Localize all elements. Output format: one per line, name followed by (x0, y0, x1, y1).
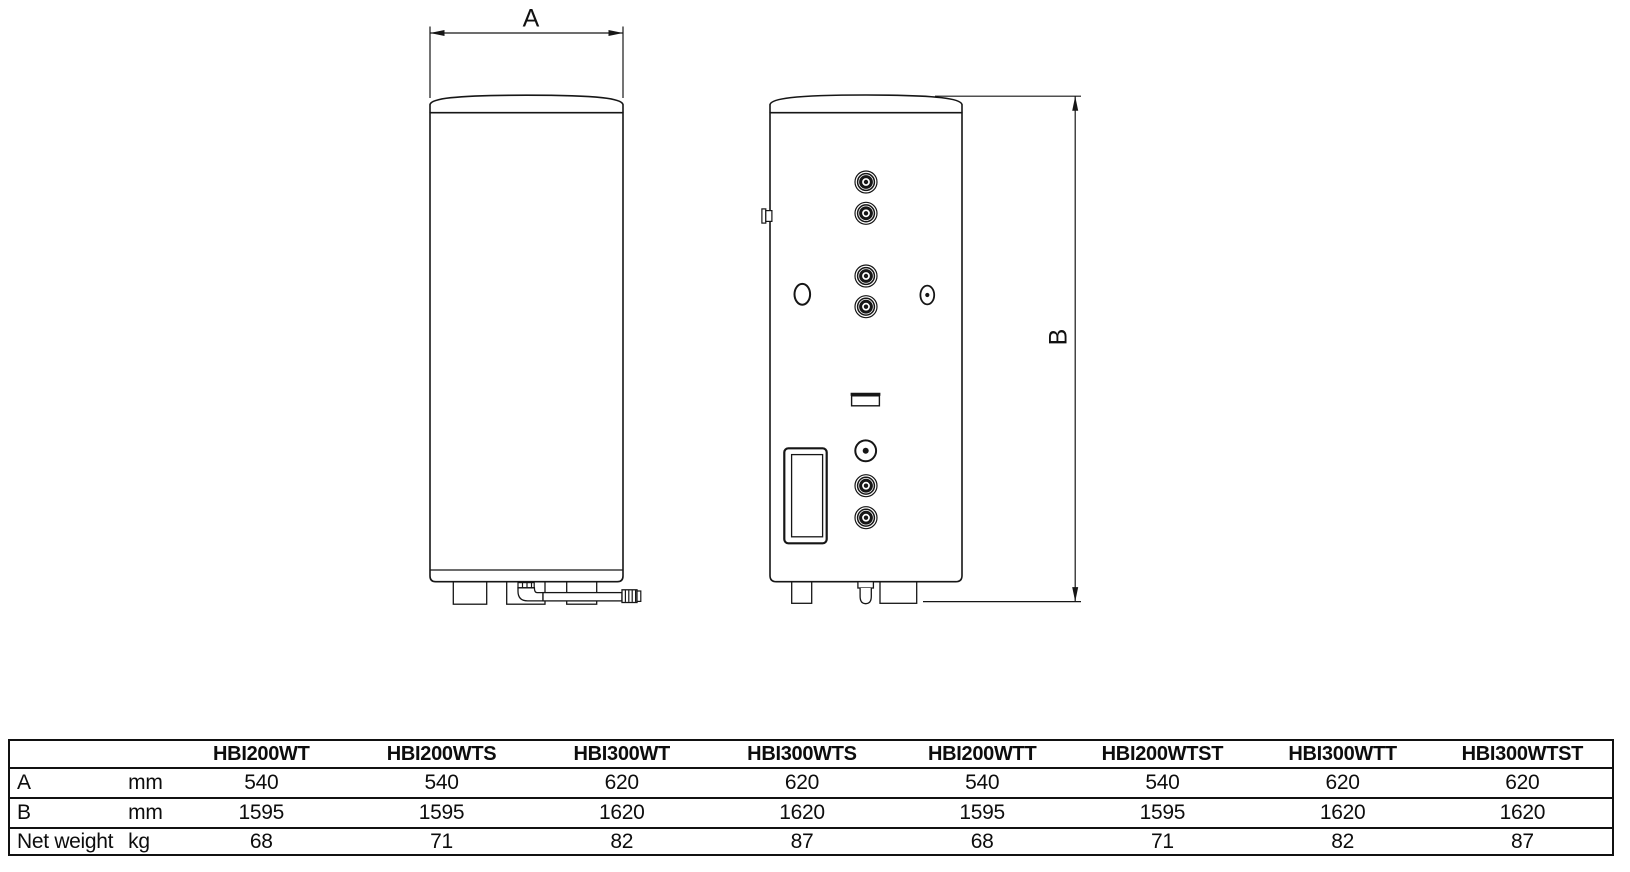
spec-cell: 1620 (532, 798, 712, 828)
sensor-pocket-right (920, 286, 934, 305)
access-panel-outer (784, 448, 826, 543)
rear-foot (880, 582, 917, 604)
front-tank-base-plate (430, 570, 623, 582)
spec-cell: 540 (171, 768, 351, 798)
arrowhead-bottom (1072, 587, 1078, 602)
pipe-elbow (518, 588, 543, 601)
front-tank-top-dome (430, 95, 623, 113)
spec-cell: 68 (171, 828, 351, 855)
pipe-threaded-end (622, 590, 637, 603)
pipe-end-cap (637, 591, 641, 601)
spec-cell: 71 (351, 828, 531, 855)
spec-cell: 1620 (1433, 798, 1613, 828)
pipe-connection-port (855, 475, 877, 497)
table-row: Bmm15951595162016201595159516201620 (9, 798, 1613, 828)
drain-valve-collar (858, 582, 874, 588)
cable-entry-box (851, 394, 881, 406)
row-unit: mm (124, 798, 171, 828)
table-row: Net weightkg6871828768718287 (9, 828, 1613, 855)
wall-bracket-tab (766, 211, 772, 222)
table-row: Amm540540620620540540620620 (9, 768, 1613, 798)
thermostat-port (855, 440, 876, 461)
rear-foot (792, 582, 812, 604)
drain-valve-body (860, 588, 871, 604)
column-header: HBI200WT (171, 740, 351, 768)
spec-table: HBI200WTHBI200WTSHBI300WTHBI300WTSHBI200… (8, 739, 1614, 856)
column-header: HBI300WTST (1433, 740, 1613, 768)
row-label: Net weight (9, 828, 124, 855)
spec-cell: 540 (892, 768, 1072, 798)
spec-cell: 87 (1433, 828, 1613, 855)
row-unit: kg (124, 828, 171, 855)
column-header: HBI200WTST (1072, 740, 1252, 768)
pipe-connection-port (855, 296, 877, 318)
spec-cell: 1620 (1253, 798, 1433, 828)
pipe-connection-port (855, 265, 877, 287)
pipe-connection-port (855, 202, 877, 224)
spec-cell: 540 (351, 768, 531, 798)
sensor-pocket-left (795, 284, 811, 305)
unit-header-cell (124, 740, 171, 768)
technical-drawing: A (0, 0, 1630, 710)
drain-pipe-assembly (518, 583, 641, 603)
spec-cell: 82 (532, 828, 712, 855)
sensor-pocket-right-dot (925, 293, 929, 297)
row-label: B (9, 798, 124, 828)
pipe-horizontal (543, 593, 622, 601)
pipe-connection-port (855, 507, 877, 529)
column-header: HBI200WTS (351, 740, 531, 768)
spec-cell: 1595 (171, 798, 351, 828)
pipe-connection-port (855, 171, 877, 193)
spec-cell: 620 (712, 768, 892, 798)
spec-cell: 1595 (1072, 798, 1252, 828)
column-header: HBI300WTS (712, 740, 892, 768)
spec-cell: 1620 (712, 798, 892, 828)
cable-entry-body (852, 396, 880, 406)
dim-b-label: B (1045, 329, 1073, 346)
arrowhead-left (430, 30, 445, 36)
front-view: A (430, 5, 641, 605)
spec-cell: 87 (712, 828, 892, 855)
front-foot (453, 582, 486, 605)
thermostat-port-dot (863, 448, 869, 454)
spec-cell: 620 (532, 768, 712, 798)
drain-valve (858, 582, 874, 604)
access-panel (784, 448, 826, 543)
corner-cell (9, 740, 124, 768)
spec-cell: 71 (1072, 828, 1252, 855)
spec-cell: 1595 (351, 798, 531, 828)
table-header-row: HBI200WTHBI200WTSHBI300WTHBI300WTSHBI200… (9, 740, 1613, 768)
spec-cell: 1595 (892, 798, 1072, 828)
dimension-b: B (923, 96, 1081, 601)
access-panel-inner (792, 455, 823, 537)
dim-a-label: A (523, 5, 540, 33)
column-header: HBI200WTT (892, 740, 1072, 768)
spec-cell: 68 (892, 828, 1072, 855)
spec-cell: 620 (1253, 768, 1433, 798)
spec-sheet-page: A (0, 0, 1630, 872)
arrowhead-top (1072, 96, 1078, 111)
dimension-a: A (430, 5, 623, 99)
spec-cell: 82 (1253, 828, 1433, 855)
row-unit: mm (124, 768, 171, 798)
rear-tank-top-dome (770, 95, 962, 113)
spec-cell: 620 (1433, 768, 1613, 798)
spec-cell: 540 (1072, 768, 1252, 798)
arrowhead-right (609, 30, 624, 36)
rear-view (762, 95, 962, 604)
column-header: HBI300WTT (1253, 740, 1433, 768)
column-header: HBI300WT (532, 740, 712, 768)
row-label: A (9, 768, 124, 798)
